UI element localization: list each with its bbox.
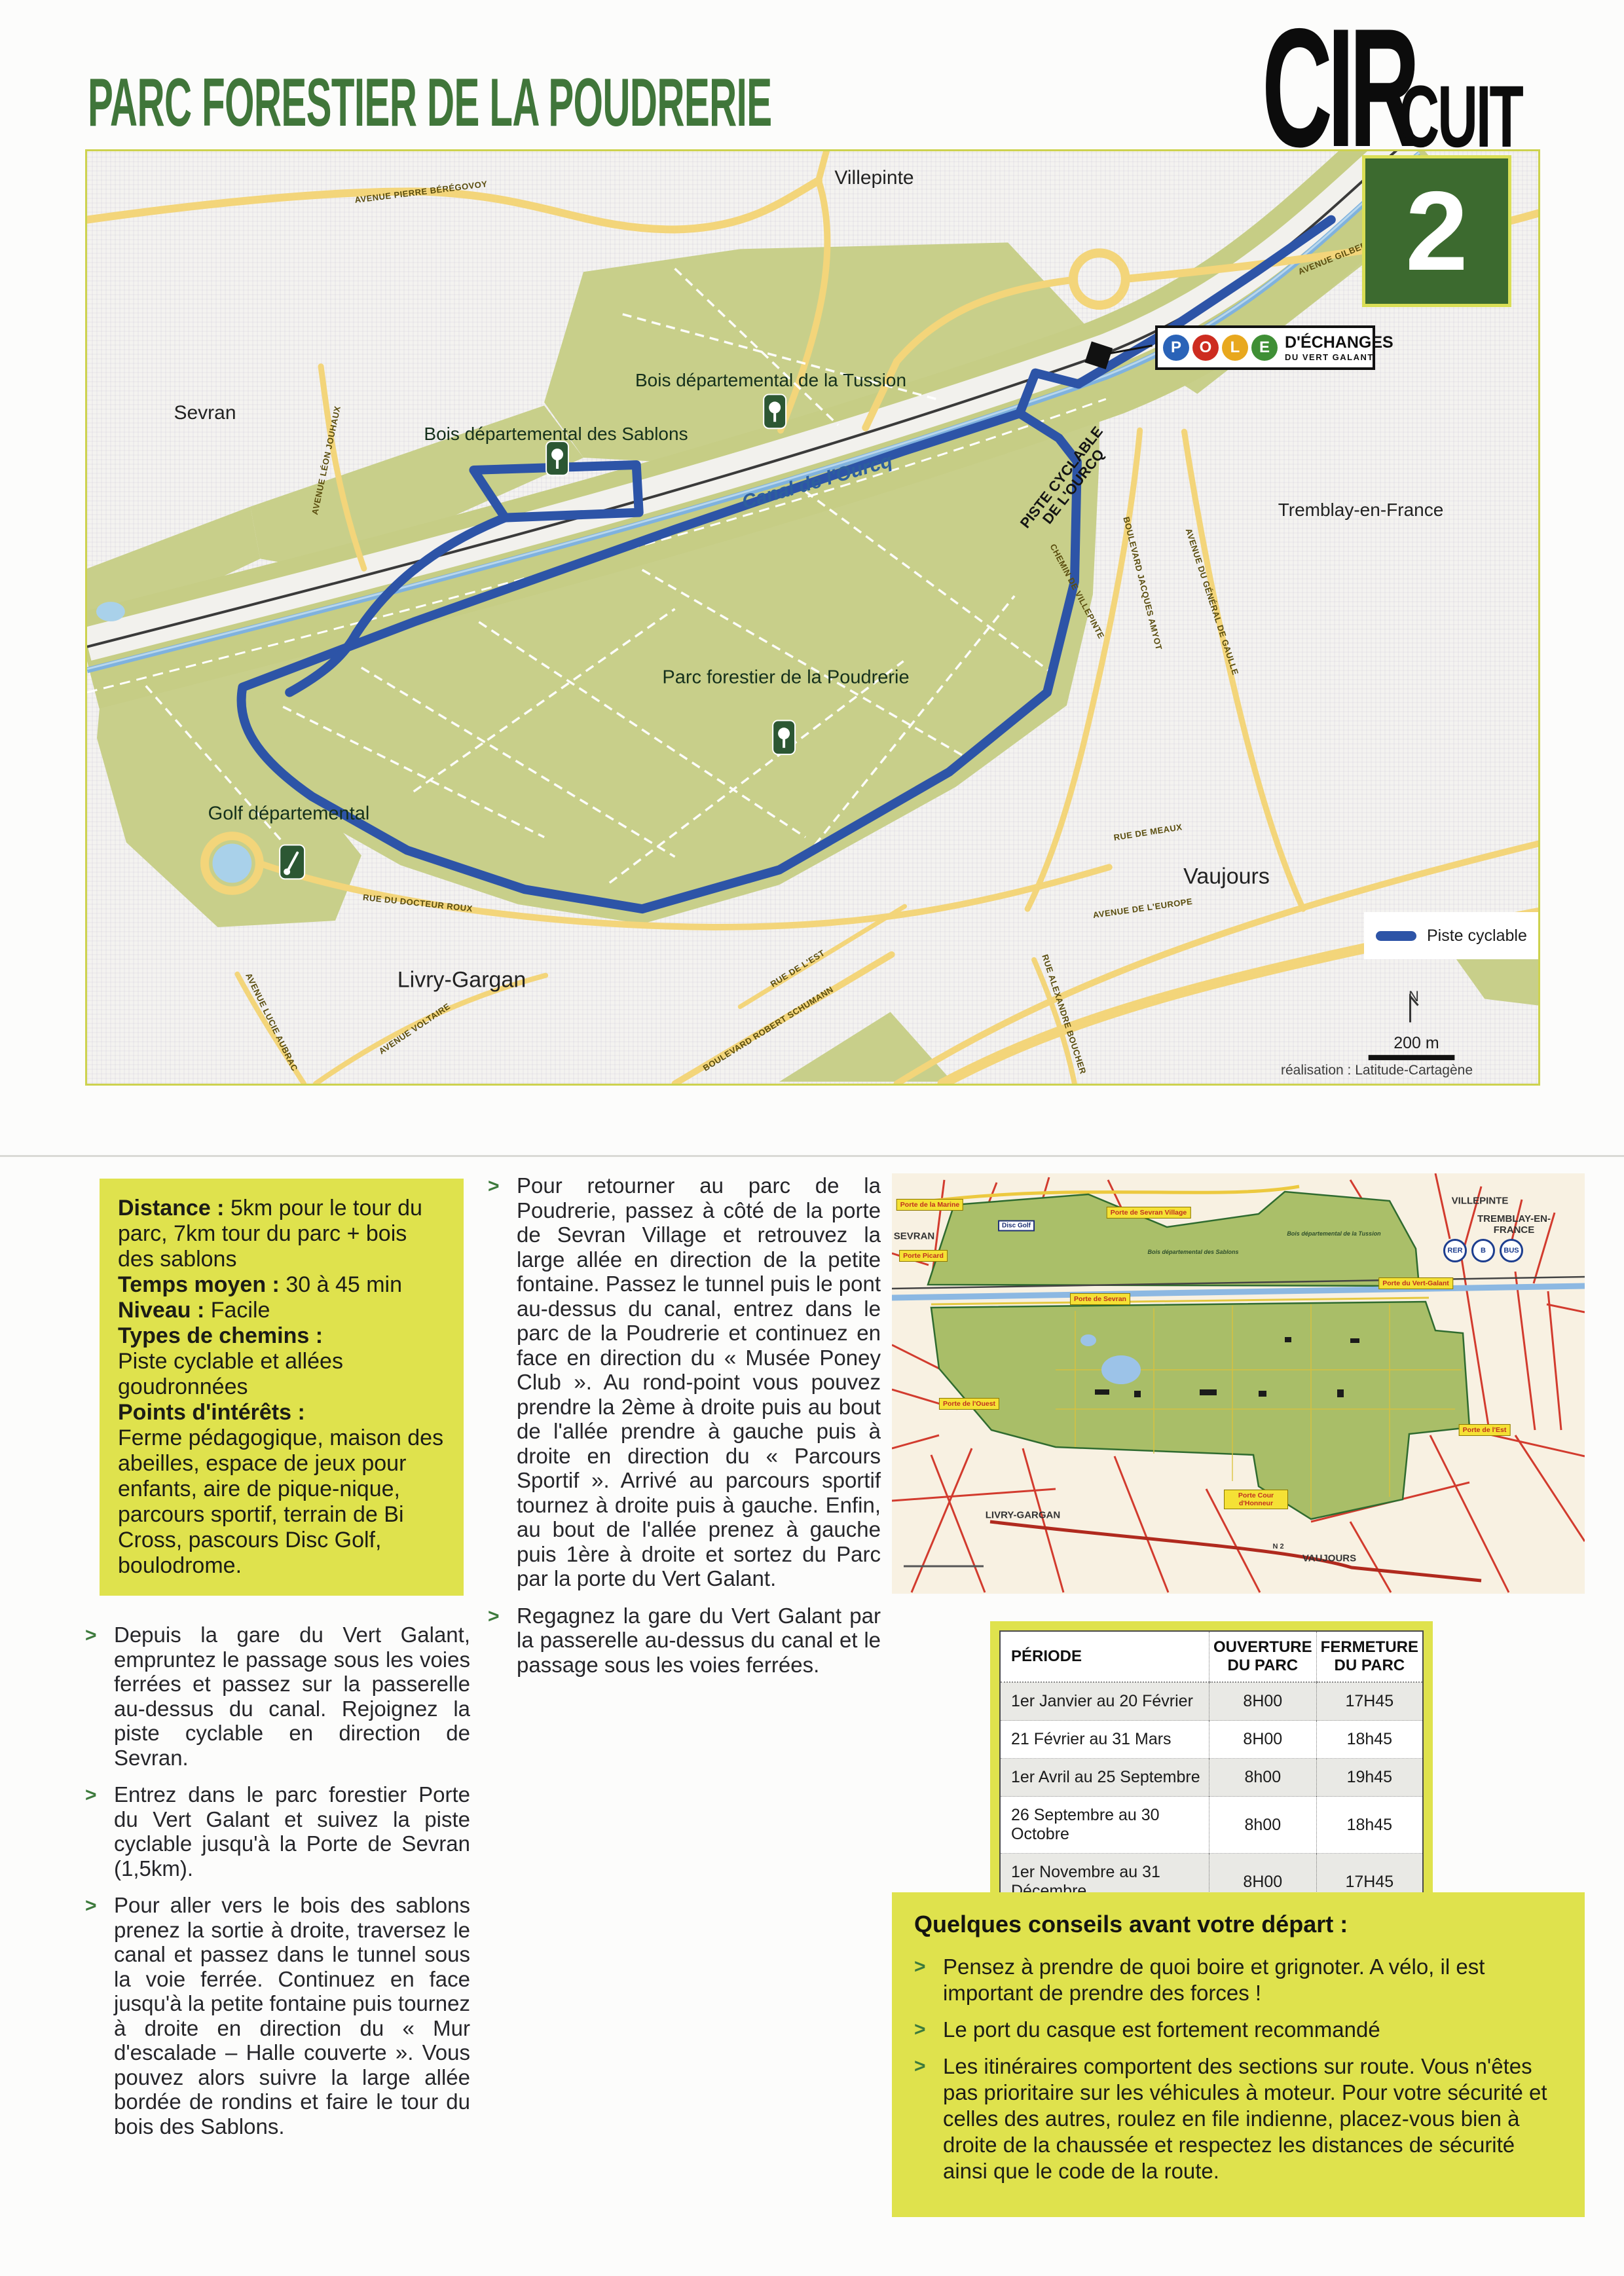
mm-road-n2 — [990, 1522, 1481, 1581]
mm-canal — [892, 1286, 1585, 1298]
mm-transit-rer: RER — [1443, 1239, 1467, 1262]
table-row: 1er Avril au 25 Septembre8h0019h45 — [1000, 1759, 1423, 1797]
interets-label: Points d'intérêts : — [118, 1400, 305, 1425]
city-label-sevran: Sevran — [174, 402, 236, 424]
mm-porte-picard: Porte Picard — [899, 1250, 948, 1262]
circuit-number: 2 — [1405, 166, 1468, 296]
distance-label: Distance : — [118, 1196, 225, 1221]
interets-value: Ferme pédagogique, maison des abeilles, … — [118, 1425, 443, 1578]
mm-disc-golf-label: Disc Golf — [998, 1221, 1035, 1232]
pole-line2: DU VERT GALANT — [1285, 353, 1393, 361]
niveau-label: Niveau : — [118, 1298, 204, 1323]
mm-porte-est: Porte de l'Est — [1459, 1424, 1511, 1436]
page-title: PARC FORESTIER DE LA POUDRERIE — [88, 64, 772, 142]
circuit-logo-cuit: CUIT — [1399, 84, 1522, 151]
pole-line1: D'ÉCHANGES — [1285, 335, 1393, 351]
route-info-box: Distance : 5km pour le tour du parc, 7km… — [100, 1179, 464, 1596]
area-label-golf: Golf départemental — [208, 803, 370, 825]
mm-porte-sevran: Porte de Sevran — [1070, 1293, 1130, 1305]
advice-item: Les itinéraires comportent des sections … — [914, 2053, 1562, 2184]
mm-city-villepinte: VILLEPINTE — [1452, 1196, 1509, 1207]
mm-porte-ouest: Porte de l'Ouest — [939, 1398, 999, 1410]
direction-item: Regagnez la gare du Vert Galant par la p… — [488, 1604, 881, 1678]
pole-letter-l: L — [1222, 335, 1248, 361]
mm-porte-marine: Porte de la Marine — [896, 1199, 963, 1211]
pole-echanges-badge: P O L E D'ÉCHANGES DU VERT GALANT — [1155, 325, 1375, 370]
direction-item: Pour retourner au parc de la Poudrerie, … — [488, 1173, 881, 1591]
mm-park-south — [931, 1302, 1469, 1519]
circuit-number-badge: 2 — [1362, 155, 1511, 307]
pole-letter-e: E — [1251, 335, 1278, 361]
mm-city-tremblay: TREMBLAY-EN-FRANCE — [1475, 1213, 1553, 1236]
table-header-row: PÉRIODE OUVERTURE DU PARC FERMETURE DU P… — [1000, 1631, 1423, 1682]
mm-porte-cour-honneur: Porte Cour d'Honneur — [1224, 1490, 1288, 1509]
legend-label: Piste cyclable — [1427, 927, 1527, 945]
area-label-tussion: Bois départemental de la Tussion — [635, 370, 906, 391]
area-label-poudrerie: Parc forestier de la Poudrerie — [662, 667, 909, 689]
mm-city-sevran: SEVRAN — [894, 1231, 935, 1242]
brochure-page: PARC FORESTIER DE LA POUDRERIE CIR CUIT … — [0, 0, 1624, 2276]
chemins-value: Piste cyclable et allées goudronnées — [118, 1349, 343, 1399]
niveau-value: Facile — [211, 1298, 270, 1323]
circuit-logo-cir: CIR — [1262, 24, 1414, 152]
section-divider — [0, 1155, 1624, 1157]
pole-letter-p: P — [1163, 335, 1189, 361]
scale-label: 200 m — [1371, 1034, 1462, 1053]
table-row: 26 Septembre au 30 Octobre8h0018h45 — [1000, 1797, 1423, 1854]
city-label-vaujours: Vaujours — [1183, 864, 1270, 890]
map-legend: Piste cyclable — [1364, 912, 1540, 959]
mm-bois-sablons-label: Bois départemental des Sablons — [1147, 1249, 1238, 1255]
mm-city-vaujours: VAUJOURS — [1302, 1553, 1356, 1564]
north-label: N — [1401, 988, 1427, 1005]
direction-item: Entrez dans le parc forestier Porte du V… — [85, 1782, 470, 1881]
city-label-tremblay: Tremblay-en-France — [1278, 500, 1444, 521]
mm-transit-b: B — [1471, 1239, 1495, 1262]
area-label-sablons: Bois départemental des Sablons — [424, 424, 688, 445]
mm-porte-sevran-village: Porte de Sevran Village — [1107, 1207, 1191, 1219]
tree-icon-poudrerie — [773, 720, 795, 754]
direction-item: Pour aller vers le bois des sablons pren… — [85, 1893, 470, 2138]
advice-item: Le port du casque est fortement recomman… — [914, 2017, 1562, 2043]
direction-item: Depuis la gare du Vert Galant, empruntez… — [85, 1623, 470, 1770]
circuit-logo: CIR CUIT — [1270, 17, 1527, 152]
detail-map-artwork — [892, 1173, 1585, 1594]
main-map: Villepinte Sevran Tremblay-en-France Vau… — [85, 149, 1540, 1086]
mm-road-n2-label: N 2 — [1272, 1543, 1283, 1551]
col-header-fermeture: FERMETURE DU PARC — [1316, 1631, 1423, 1682]
mm-bois-tussion-label: Bois départemental de la Tussion — [1287, 1230, 1380, 1237]
tree-icon-tussion — [764, 394, 786, 428]
chemins-label: Types de chemins : — [118, 1323, 323, 1348]
table-row: 21 Février au 31 Mars8H0018h45 — [1000, 1721, 1423, 1759]
directions-column-left: Depuis la gare du Vert Galant, empruntez… — [85, 1623, 470, 2151]
mm-transit-bus: BUS — [1500, 1239, 1523, 1262]
table-row: 1er Janvier au 20 Février8H0017H45 — [1000, 1682, 1423, 1721]
advice-item: Pensez à prendre de quoi boire et grigno… — [914, 1954, 1562, 2006]
advice-title: Quelques conseils avant votre départ : — [914, 1911, 1562, 1938]
scale-bar — [1369, 1055, 1455, 1060]
col-header-periode: PÉRIODE — [1000, 1631, 1209, 1682]
temps-label: Temps moyen : — [118, 1272, 280, 1297]
mm-park-north — [928, 1192, 1419, 1286]
mm-porte-vert-galant: Porte du Vert-Galant — [1378, 1277, 1453, 1289]
mm-city-livry: LIVRY-GARGAN — [986, 1510, 1060, 1521]
golf-icon — [280, 845, 304, 879]
opening-hours-table: PÉRIODE OUVERTURE DU PARC FERMETURE DU P… — [990, 1621, 1433, 1920]
col-header-ouverture: OUVERTURE DU PARC — [1209, 1631, 1316, 1682]
map-artwork — [87, 151, 1538, 1084]
detail-map: SEVRAN VILLEPINTE TREMBLAY-EN-FRANCE LIV… — [892, 1173, 1585, 1594]
directions-column-middle: Pour retourner au parc de la Poudrerie, … — [488, 1173, 881, 1689]
temps-value: 30 à 45 min — [286, 1272, 402, 1297]
legend-route-swatch — [1376, 931, 1416, 941]
pole-letter-o: O — [1192, 335, 1219, 361]
tree-icon-sablons — [546, 441, 568, 475]
advice-box: Quelques conseils avant votre départ : P… — [892, 1892, 1585, 2217]
city-label-villepinte: Villepinte — [834, 167, 913, 189]
map-credit: réalisation : Latitude-Cartagène — [1281, 1063, 1473, 1078]
city-label-livry-gargan: Livry-Gargan — [397, 968, 526, 993]
